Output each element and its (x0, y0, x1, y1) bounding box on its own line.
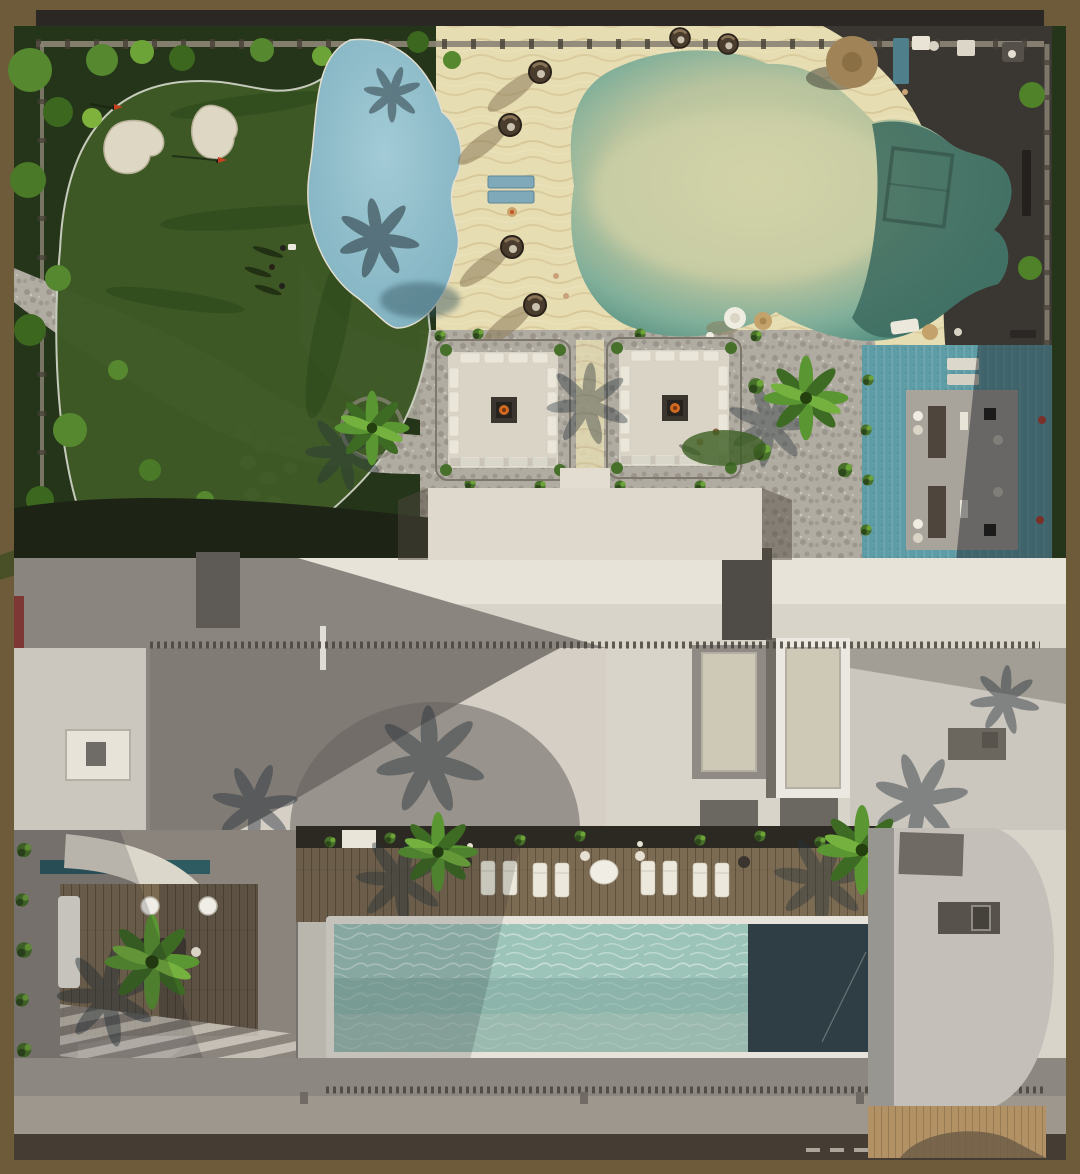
building-edge-shadow (868, 828, 894, 1108)
right-building (868, 828, 1054, 1158)
sand-bunker-right (192, 105, 237, 158)
site-plan-svg (0, 0, 1080, 1174)
entry-slab-shadow-west (398, 488, 428, 560)
rooftop-pool-terrace (296, 805, 907, 1060)
aerial-render-image (0, 0, 1080, 1174)
red-equipment (14, 596, 24, 648)
roof-box-2 (722, 548, 772, 640)
deck-step-1 (947, 358, 979, 370)
entry-slab-shadow-east (762, 488, 792, 560)
entry-slab (428, 488, 762, 560)
pool-shaded-end (748, 924, 870, 1052)
roof-vent-east-grille (982, 732, 998, 748)
teal-pool-deck (861, 345, 1053, 560)
skylight-box-1 (899, 832, 964, 876)
roof-hatch-west-opening (86, 742, 106, 766)
roof-box-1 (196, 552, 240, 628)
top-frame-bar (36, 10, 1044, 26)
skylight-box-2-glass (972, 906, 990, 930)
